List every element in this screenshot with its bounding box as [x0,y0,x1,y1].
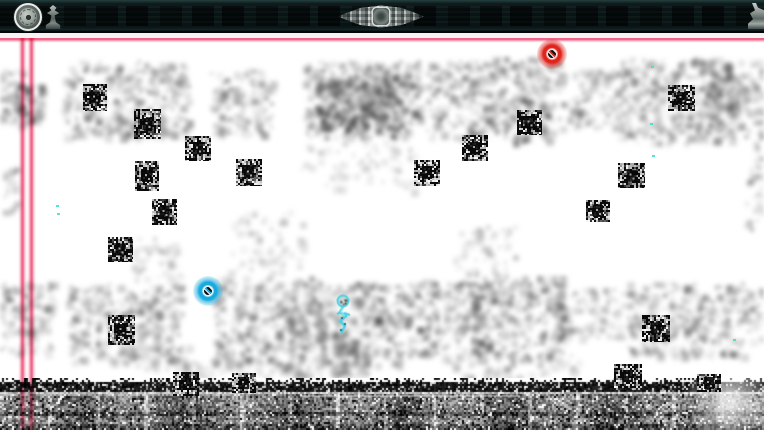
player-character[interactable] [331,292,355,336]
qr-noise-block [517,110,542,135]
medallion-icon [14,3,42,31]
red-orb-glyph [548,50,556,58]
qr-noise-block [414,160,440,186]
qr-noise-block [135,161,159,191]
glitch-particle [57,213,60,215]
qr-noise-block [586,200,610,222]
qr-noise-block [614,364,642,388]
qr-noise-block [697,374,721,392]
background-noise-layer [0,0,764,430]
qr-noise-block [108,315,135,345]
qr-noise-block [173,372,199,396]
glitch-particle [650,123,653,125]
qr-noise-block [152,199,177,225]
glitch-particle [651,66,654,68]
glitch-scanline-vertical-1 [18,33,27,430]
qr-noise-block [618,163,645,188]
game-viewport[interactable] [0,0,764,430]
qr-noise-block [642,315,670,342]
ground-terrain [0,378,764,430]
qr-noise-block [185,136,211,161]
glitch-particle [733,339,736,341]
qr-noise-block [83,84,107,111]
qr-noise-block [236,159,262,186]
glitch-particle [652,155,655,157]
qr-noise-block [668,85,695,111]
glitch-particle [56,205,59,207]
emblem-center-boss [373,8,389,25]
qr-noise-block [232,373,256,393]
qr-noise-block [462,135,488,161]
red-orb[interactable] [537,39,567,69]
medallion-center-dot [26,15,31,20]
qr-noise-block [108,237,133,262]
top-hud-bar [0,0,764,33]
hud-lower-strip [0,33,764,38]
cyan-orb-glyph [204,287,212,295]
glitch-scanline-vertical-2 [27,33,36,430]
qr-noise-block [134,109,161,139]
cyan-orb[interactable] [193,276,223,306]
